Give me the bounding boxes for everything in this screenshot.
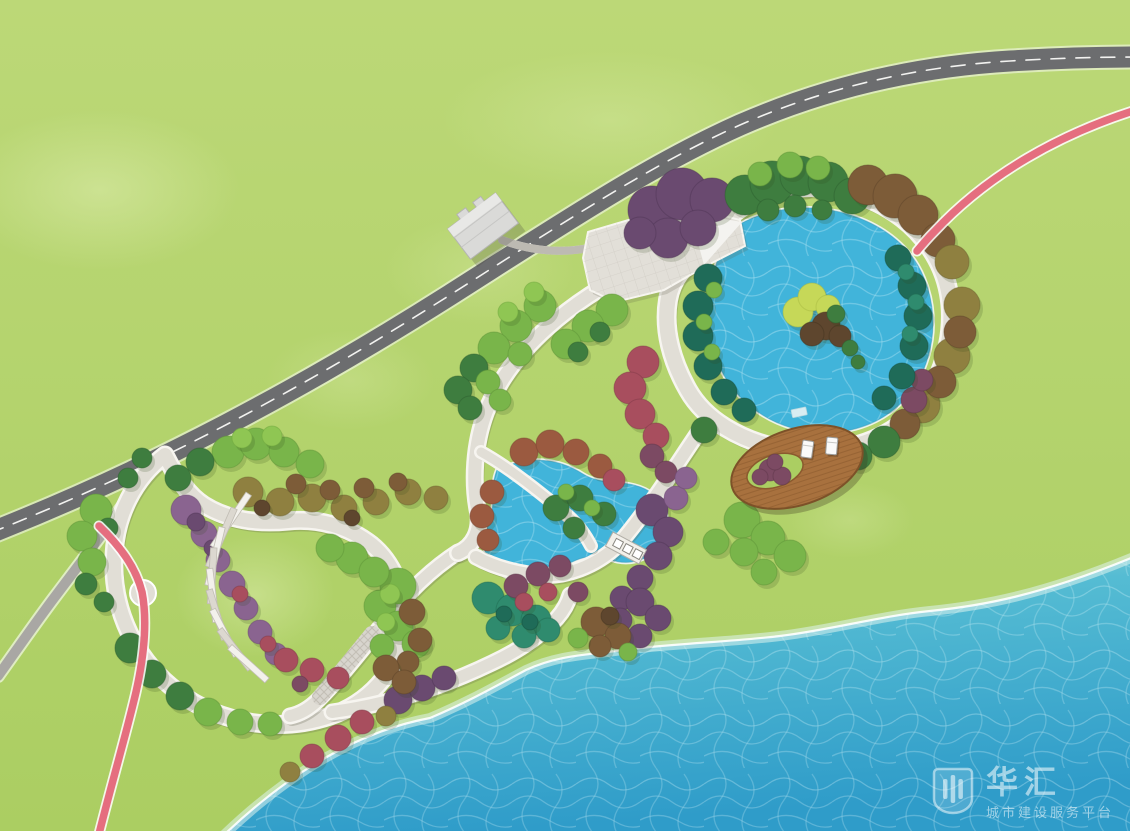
lounge-chair (825, 437, 840, 457)
planter-shrub (767, 454, 783, 470)
planter-shrub (752, 469, 768, 485)
site-plan-canvas: 华汇 城市建设服务平台 (0, 0, 1130, 831)
site-plan-map (0, 0, 1130, 831)
lounge-chair (800, 440, 816, 461)
